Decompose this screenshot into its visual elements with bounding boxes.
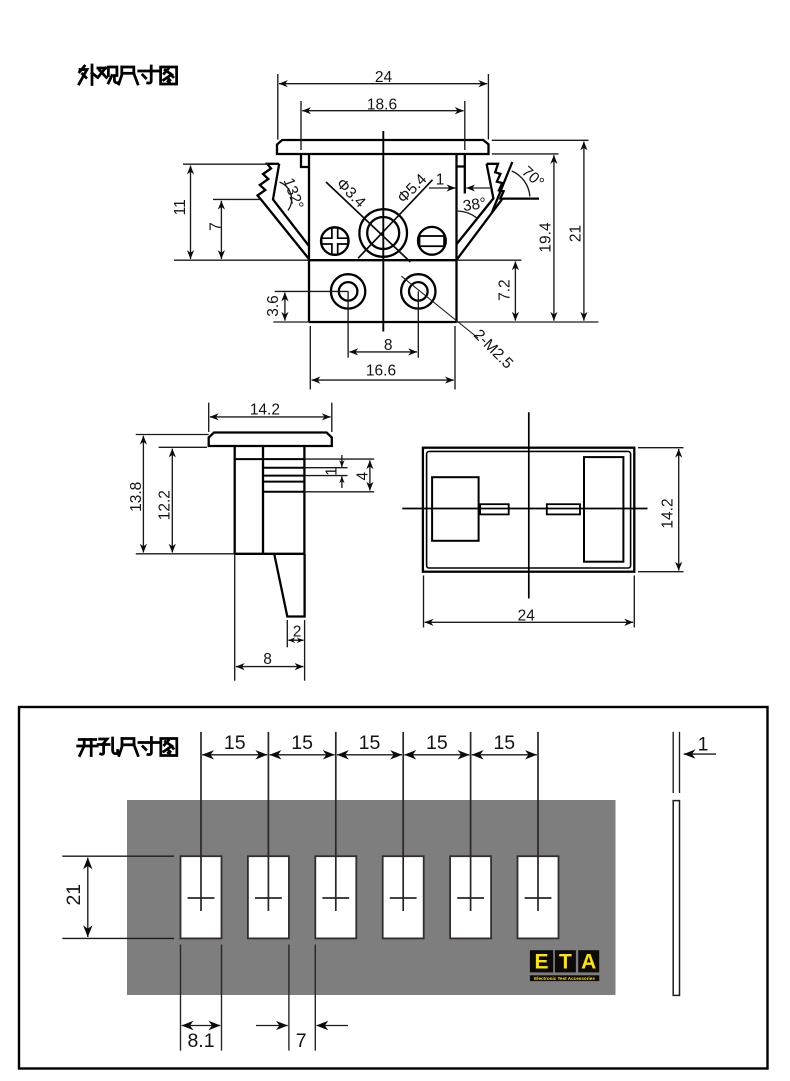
svg-text:19.4: 19.4 <box>538 222 555 253</box>
svg-text:18.6: 18.6 <box>367 97 397 114</box>
svg-text:16.6: 16.6 <box>366 363 396 380</box>
svg-text:7.2: 7.2 <box>497 279 514 301</box>
svg-text:E: E <box>534 951 548 974</box>
svg-text:1: 1 <box>698 734 709 756</box>
svg-text:4: 4 <box>354 472 371 481</box>
svg-text:24: 24 <box>518 607 536 624</box>
svg-text:2: 2 <box>293 623 302 640</box>
svg-text:11: 11 <box>172 199 189 215</box>
svg-text:15: 15 <box>493 732 515 754</box>
svg-text:15: 15 <box>224 732 246 754</box>
svg-text:15: 15 <box>291 732 313 754</box>
svg-text:A: A <box>581 951 596 974</box>
svg-text:14.2: 14.2 <box>250 402 280 419</box>
svg-text:7: 7 <box>296 1030 307 1052</box>
svg-text:Electronic Test Accessories: Electronic Test Accessories <box>534 976 595 981</box>
svg-text:13.8: 13.8 <box>128 482 145 512</box>
svg-text:8.1: 8.1 <box>187 1030 214 1052</box>
svg-text:3.6: 3.6 <box>265 295 282 317</box>
svg-text:1: 1 <box>436 172 445 189</box>
svg-text:21: 21 <box>568 225 585 242</box>
svg-text:15: 15 <box>359 732 381 754</box>
svg-text:7: 7 <box>208 222 225 231</box>
svg-text:8: 8 <box>384 337 393 354</box>
svg-text:12.2: 12.2 <box>157 490 174 520</box>
svg-text:T: T <box>559 951 572 974</box>
svg-text:14.2: 14.2 <box>659 498 676 528</box>
svg-text:21: 21 <box>63 884 85 906</box>
svg-text:38°: 38° <box>462 195 488 215</box>
svg-text:24: 24 <box>375 69 393 86</box>
svg-text:8: 8 <box>263 651 272 668</box>
svg-text:15: 15 <box>426 732 448 754</box>
svg-text:1: 1 <box>324 467 341 476</box>
